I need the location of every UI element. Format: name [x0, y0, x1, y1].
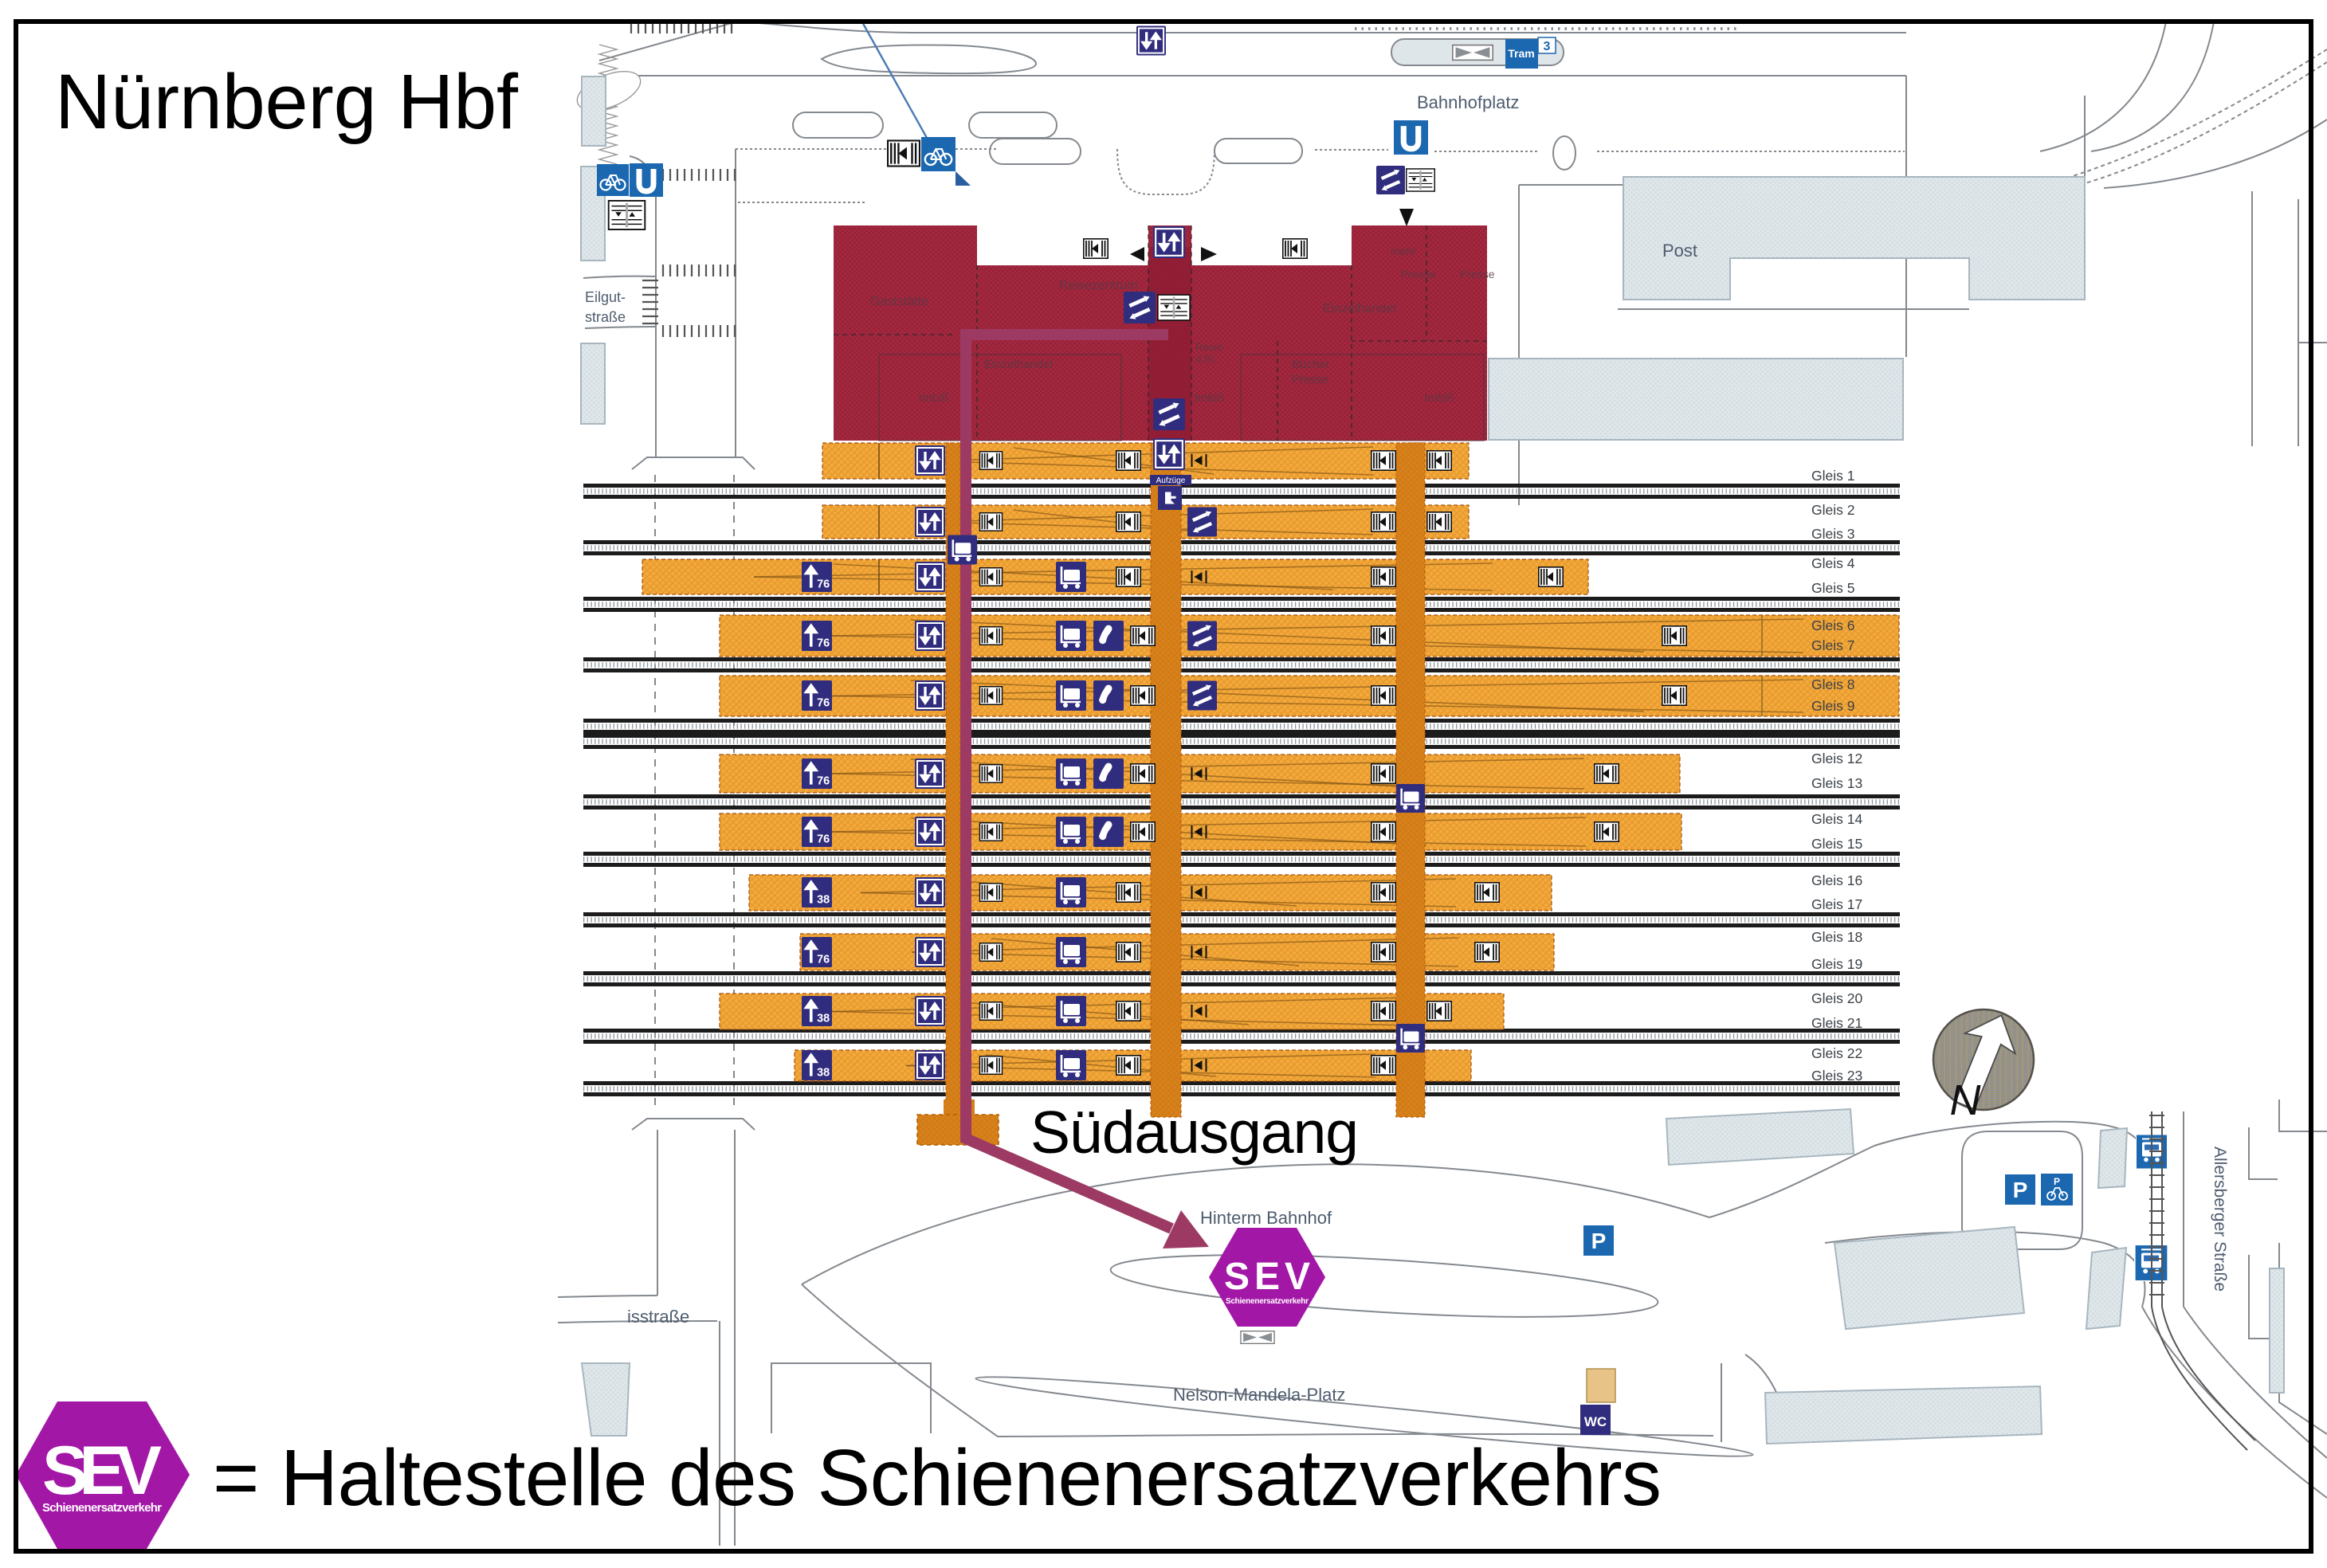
svg-text:Aufzüge: Aufzüge	[1156, 476, 1186, 485]
svg-text:Imbiß: Imbiß	[1195, 391, 1225, 405]
svg-text:Tram: Tram	[1508, 47, 1534, 60]
svg-text:Gleis 5: Gleis 5	[1811, 580, 1854, 596]
svg-text:Gleis 21: Gleis 21	[1811, 1015, 1862, 1031]
svg-text:Schienenersatzverkehr: Schienenersatzverkehr	[42, 1501, 162, 1515]
svg-text:mehr: mehr	[1391, 245, 1416, 257]
svg-text:Presse: Presse	[1460, 268, 1495, 280]
svg-text:Gleis 17: Gleis 17	[1811, 896, 1862, 912]
svg-text:Südausgang: Südausgang	[1030, 1099, 1359, 1166]
svg-text:Gleis 3: Gleis 3	[1811, 526, 1854, 542]
svg-text:Raum: Raum	[1195, 341, 1223, 353]
svg-text:= Haltestelle des Schienenersa: = Haltestelle des Schienenersatzverkehrs	[213, 1433, 1662, 1523]
svg-text:Post: Post	[1662, 241, 1697, 261]
svg-text:Gleis 15: Gleis 15	[1811, 836, 1862, 852]
svg-text:Schienenersatzverkehr: Schienenersatzverkehr	[1226, 1297, 1309, 1306]
svg-text:Gleis 22: Gleis 22	[1811, 1045, 1862, 1061]
svg-text:Gleis 2: Gleis 2	[1811, 502, 1854, 518]
svg-text:SEV: SEV	[1224, 1256, 1310, 1298]
svg-text:Eilgut-: Eilgut-	[585, 289, 626, 305]
svg-text:straße: straße	[585, 309, 626, 325]
svg-text:Gleis 8: Gleis 8	[1811, 676, 1854, 692]
svg-text:Gleis 1: Gleis 1	[1811, 468, 1854, 484]
svg-text:SEV: SEV	[42, 1433, 162, 1509]
svg-text:Presse: Presse	[1401, 268, 1436, 280]
svg-text:Gleis 18: Gleis 18	[1811, 929, 1862, 945]
svg-text:Gleis 16: Gleis 16	[1811, 872, 1862, 888]
svg-text:isstraße: isstraße	[627, 1307, 689, 1327]
svg-text:Einzelhandel: Einzelhandel	[984, 358, 1053, 371]
svg-text:Imbiß: Imbiß	[1424, 391, 1454, 405]
svg-text:Gleis 14: Gleis 14	[1811, 811, 1862, 827]
svg-text:3: 3	[1544, 40, 1551, 53]
svg-text:Gleis 19: Gleis 19	[1811, 956, 1862, 972]
svg-text:Imbiß: Imbiß	[919, 391, 949, 405]
svg-text:Allersberger Straße: Allersberger Straße	[2211, 1147, 2229, 1292]
svg-text:Gleis 9: Gleis 9	[1811, 698, 1854, 714]
svg-text:Gleis 23: Gleis 23	[1811, 1068, 1862, 1084]
svg-text:Gleis 12: Gleis 12	[1811, 751, 1862, 766]
svg-text:Gleis 6: Gleis 6	[1811, 617, 1854, 633]
svg-text:Reisezentrum: Reisezentrum	[1059, 279, 1138, 292]
svg-text:Hinterm Bahnhof: Hinterm Bahnhof	[1200, 1208, 1332, 1228]
svg-text:Gleis 7: Gleis 7	[1811, 637, 1854, 653]
svg-text:Gleis 4: Gleis 4	[1811, 555, 1855, 571]
svg-text:Bücher: Bücher	[1292, 358, 1330, 371]
svg-text:Presse: Presse	[1292, 373, 1329, 386]
svg-text:Nelson-Mandela-Platz: Nelson-Mandela-Platz	[1173, 1385, 1345, 1405]
svg-text:Gleis 13: Gleis 13	[1811, 775, 1862, 791]
svg-text:Gleis 20: Gleis 20	[1811, 990, 1862, 1006]
svg-text:Gaststätte: Gaststätte	[870, 295, 928, 308]
svg-text:Einzelhandel: Einzelhandel	[1323, 302, 1396, 316]
svg-text:Bahnhofplatz: Bahnhofplatz	[1417, 92, 1519, 112]
svg-text:N: N	[1950, 1076, 1982, 1124]
svg-text:Nürnberg Hbf: Nürnberg Hbf	[55, 58, 519, 145]
svg-text:d.St.: d.St.	[1195, 353, 1217, 365]
